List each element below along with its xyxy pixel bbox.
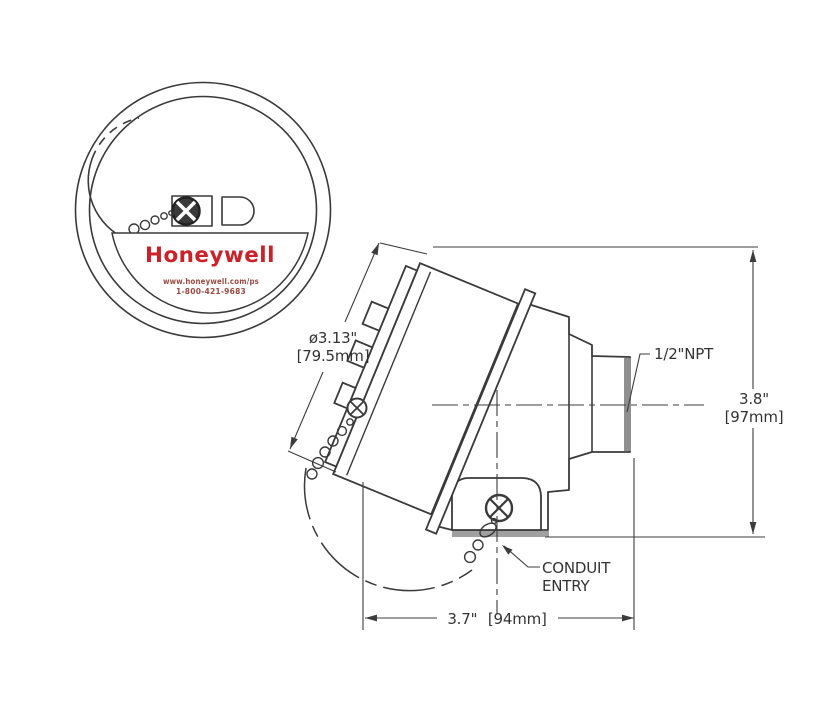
conduit-label-line2: ENTRY — [542, 577, 591, 595]
cover-screw-icon — [348, 399, 367, 418]
bead-chain-icon — [129, 211, 173, 234]
conduit-screw-icon — [486, 495, 512, 521]
d-slot — [222, 197, 254, 225]
conduit-label-line1: CONDUIT — [542, 559, 611, 577]
dim-width-label: 3.7" [94mm] — [447, 610, 546, 628]
conduit-callout: CONDUIT ENTRY — [502, 545, 611, 595]
phone-text: 1-800-421-9683 — [176, 287, 246, 296]
technical-drawing-page: Honeywell www.honeywell.com/ps 1-800-421… — [0, 0, 839, 714]
website-text: www.honeywell.com/ps — [163, 277, 259, 286]
front-view: Honeywell www.honeywell.com/ps 1-800-421… — [76, 83, 331, 338]
dim-diameter-inches: ø3.13" — [309, 329, 357, 347]
dim-height-inches: 3.8" — [739, 390, 769, 408]
side-view — [299, 237, 704, 614]
hub-shadow — [452, 531, 549, 537]
drawing-svg: Honeywell www.honeywell.com/ps 1-800-421… — [0, 0, 839, 714]
dim-diameter-mm: [79.5mm] — [297, 347, 370, 365]
npt-label: 1/2"NPT — [654, 345, 714, 363]
honeywell-logo: Honeywell — [145, 243, 275, 267]
dim-height-mm: [97mm] — [725, 408, 784, 426]
phillips-screw-icon — [173, 198, 200, 225]
conduit-leader-arrow — [502, 545, 513, 555]
npt-callout: 1/2"NPT — [627, 345, 714, 412]
swing-cover-arc-solid — [88, 159, 126, 239]
